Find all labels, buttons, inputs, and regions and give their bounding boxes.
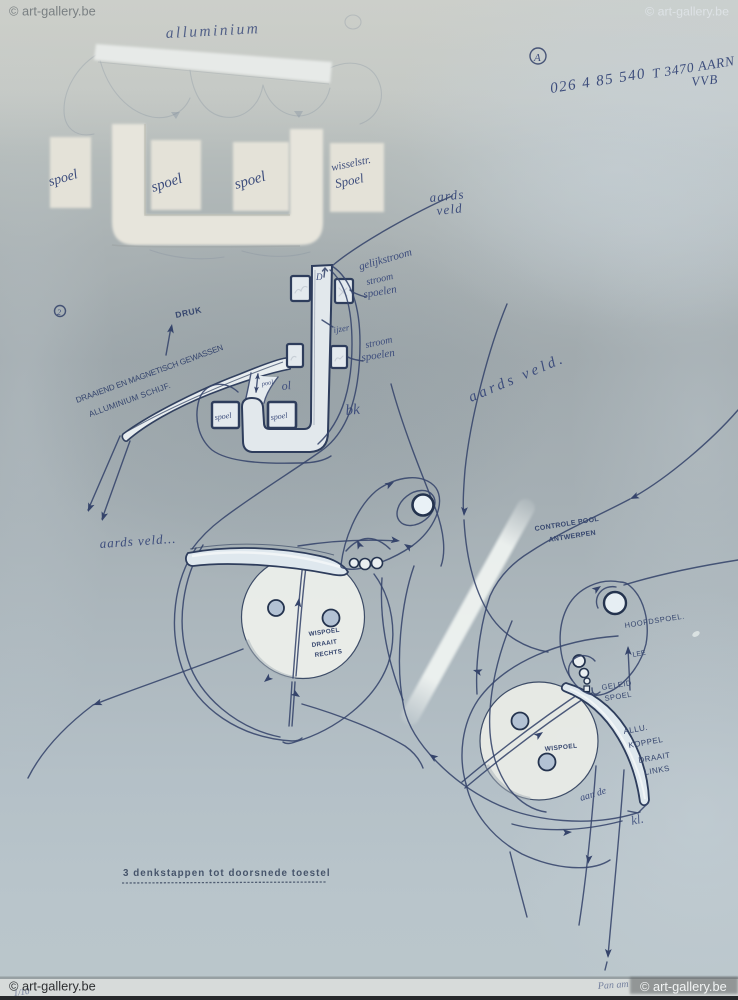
svg-text:© art-gallery.be: © art-gallery.be — [640, 979, 727, 994]
svg-text:© art-gallery.be: © art-gallery.be — [9, 4, 96, 19]
svg-text:3 denkstappen tot doorsnede to: 3 denkstappen tot doorsnede toestel — [123, 868, 331, 879]
svg-text:© art-gallery.be: © art-gallery.be — [9, 979, 96, 994]
svg-text:veld: veld — [436, 200, 464, 218]
svg-text:2: 2 — [57, 308, 61, 317]
svg-text:D: D — [315, 272, 323, 282]
svg-text:© art-gallery.be: © art-gallery.be — [645, 5, 729, 19]
svg-text:A: A — [533, 52, 541, 64]
svg-text:VVB: VVB — [691, 71, 719, 89]
svg-text:Pan am: Pan am — [596, 979, 629, 992]
